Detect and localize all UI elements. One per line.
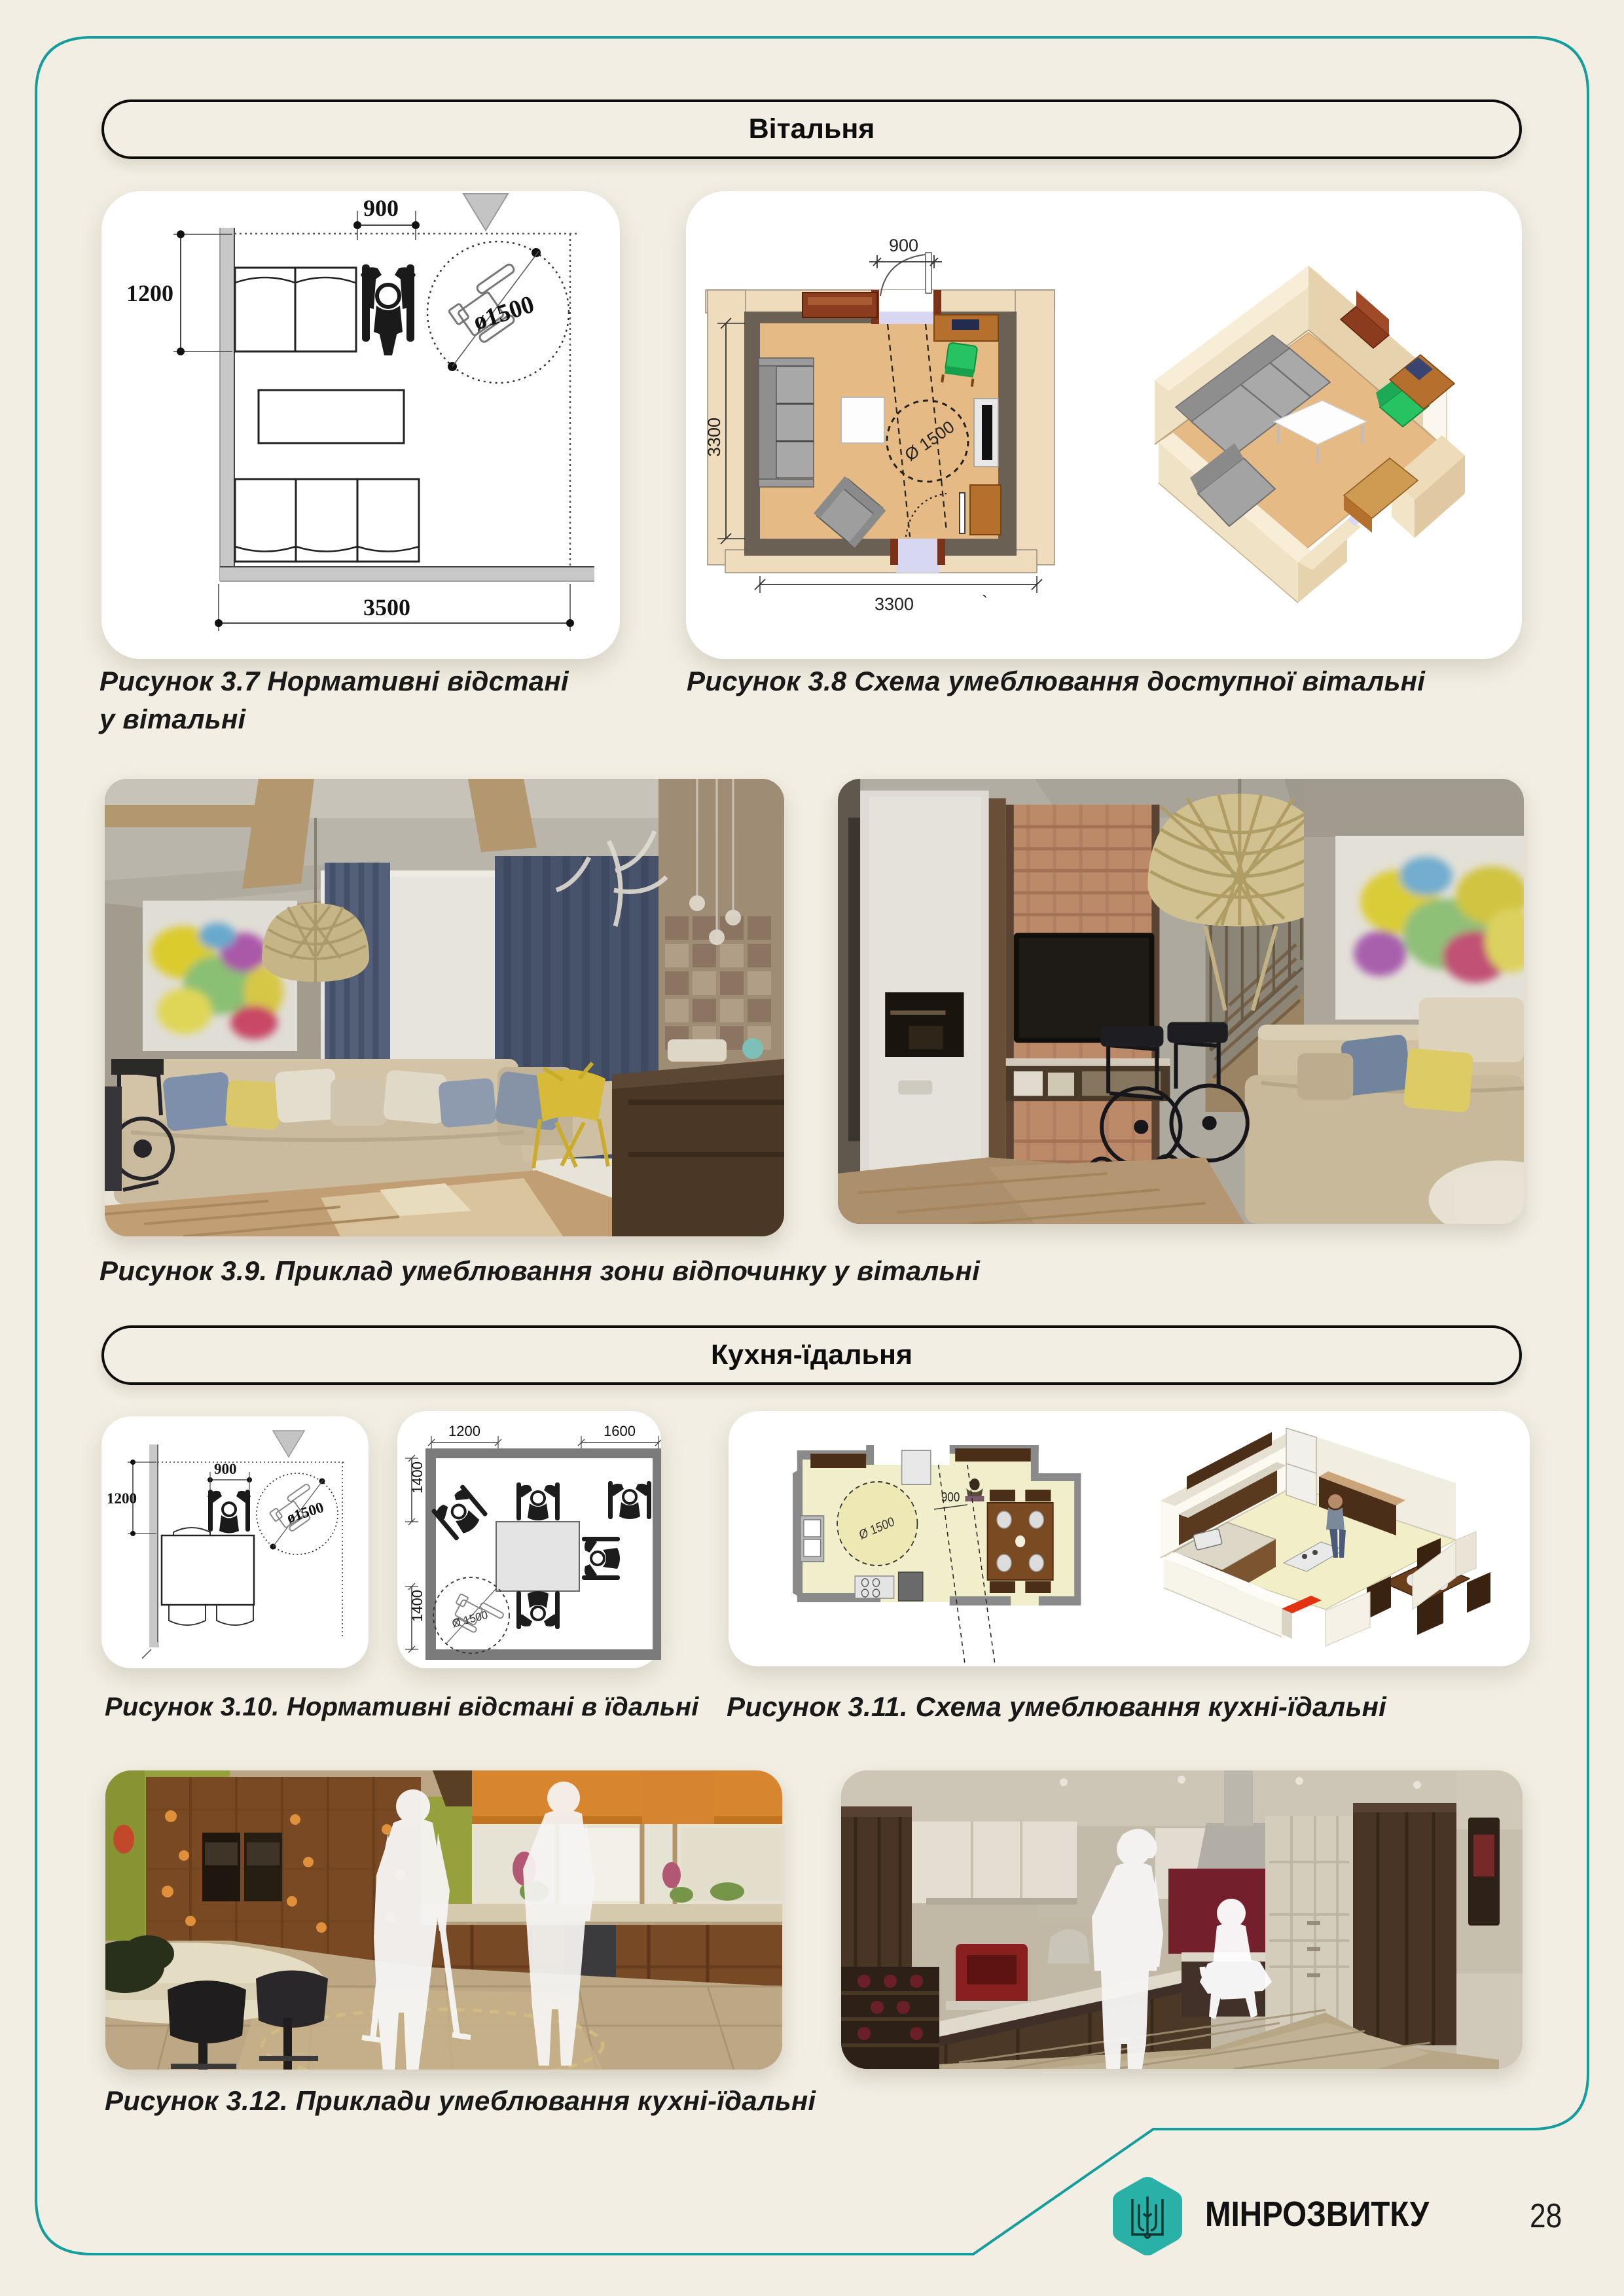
svg-text:3300: 3300 [875, 594, 914, 614]
svg-text:`: ` [982, 592, 988, 612]
svg-text:900: 900 [941, 1490, 960, 1505]
svg-text:1200: 1200 [107, 1490, 137, 1507]
svg-text:900: 900 [363, 195, 399, 221]
svg-text:3300: 3300 [704, 418, 724, 457]
svg-text:900: 900 [889, 236, 918, 255]
svg-text:3500: 3500 [363, 594, 410, 620]
svg-text:1400: 1400 [409, 1462, 425, 1494]
svg-text:1200: 1200 [126, 280, 173, 306]
svg-text:1200: 1200 [448, 1423, 480, 1439]
svg-text:900: 900 [214, 1461, 237, 1477]
svg-text:1600: 1600 [604, 1423, 636, 1439]
svg-text:1400: 1400 [409, 1590, 425, 1622]
